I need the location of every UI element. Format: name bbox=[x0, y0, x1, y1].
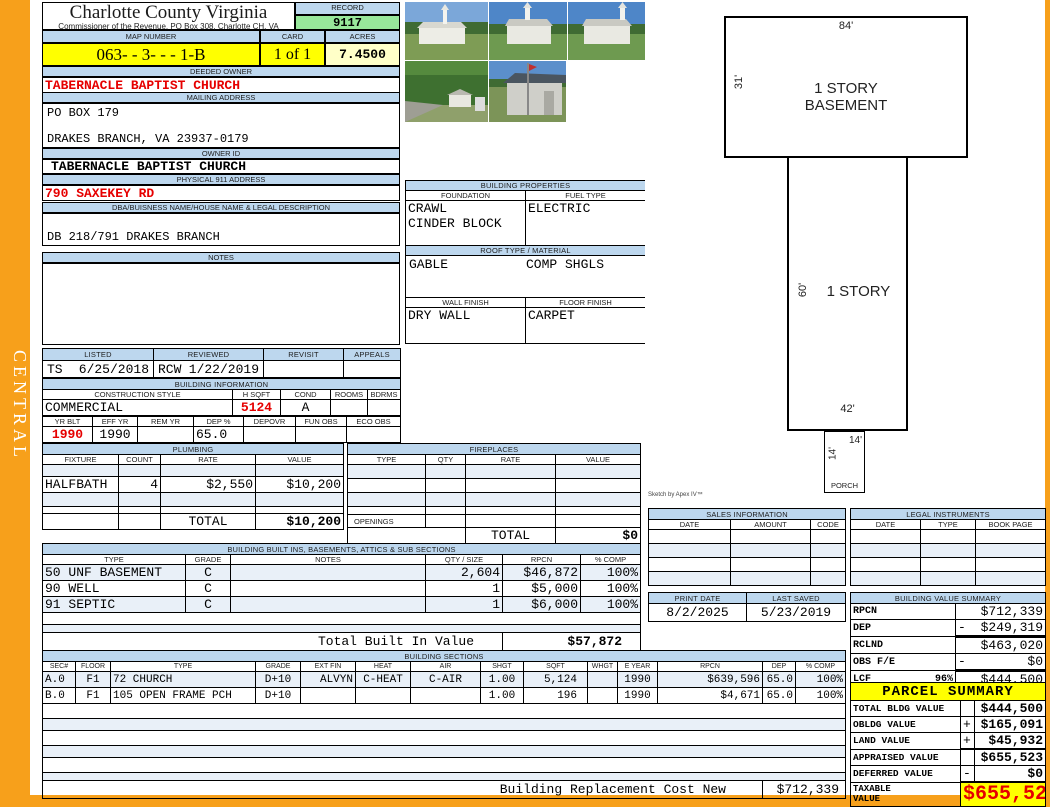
built-in-row: 91 SEPTIC C 1 $6,000 100% bbox=[43, 597, 641, 613]
appeals-value bbox=[344, 361, 401, 378]
sketch-credit: Sketch by Apex IV™ bbox=[648, 492, 703, 498]
dep-override bbox=[244, 427, 296, 443]
map-number-label: MAP NUMBER bbox=[42, 30, 260, 43]
dba-label: DBA/BUISNESS NAME/HOUSE NAME & LEGAL DES… bbox=[42, 202, 400, 213]
owner-id-value: TABERNACLE BAPTIST CHURCH bbox=[42, 159, 400, 174]
roof-value: GABLE COMP SHGLS bbox=[406, 256, 646, 298]
plumbing-count: 4 bbox=[119, 477, 161, 493]
owner-id-label: OWNER ID bbox=[42, 148, 400, 159]
parcel-row: DEFERRED VALUE - $0 bbox=[851, 766, 1046, 783]
obs-value: -$0 bbox=[956, 654, 1046, 671]
sketch-story-label: 1 STORY bbox=[811, 283, 906, 300]
dates-table: PRINT DATE LAST SAVED 8/2/2025 5/23/2019 bbox=[648, 592, 845, 622]
parcel-row: TOTAL BLDG VALUE $444,500 bbox=[851, 701, 1046, 717]
sketch-porch-label: PORCH bbox=[825, 481, 864, 490]
fireplaces-openings-label: OPENINGS bbox=[348, 515, 426, 528]
sales-information-table: SALES INFORMATION DATE AMOUNT CODE bbox=[648, 508, 845, 586]
photo-church-side-2[interactable] bbox=[568, 2, 645, 60]
building-information-table: BUILDING INFORMATION CONSTRUCTION STYLE … bbox=[42, 378, 400, 443]
parcel-row: APPRAISED VALUE $655,523 bbox=[851, 749, 1046, 766]
photo-church-front-image bbox=[405, 2, 488, 60]
built-ins-table: BUILDING BUILT INS, BASEMENTS, ATTICS & … bbox=[42, 543, 640, 651]
mailing-line2: DRAKES BRANCH, VA 23937-0179 bbox=[43, 120, 399, 146]
sketch-porch-height: 14' bbox=[828, 441, 839, 467]
plumbing-table: PLUMBING FIXTURE COUNT RATE VALUE HALFBA… bbox=[42, 443, 343, 530]
built-in-row: 90 WELL C 1 $5,000 100% bbox=[43, 581, 641, 597]
acres-value: 7.4500 bbox=[325, 43, 400, 66]
physical-911-value: 790 SAXEKEY RD bbox=[42, 185, 400, 201]
photo-metal-building-image bbox=[489, 61, 566, 122]
region-tab-central[interactable]: CENTRAL bbox=[0, 320, 30, 490]
photo-church-side-2-image bbox=[568, 2, 645, 60]
effective-year: 1990 bbox=[93, 427, 138, 443]
sketch-story-height: 60' bbox=[797, 275, 809, 305]
photo-metal-building[interactable] bbox=[489, 61, 566, 122]
appeals-label: APPEALS bbox=[344, 349, 401, 361]
photo-church-front[interactable] bbox=[405, 2, 488, 60]
review-table: LISTED REVIEWED REVISIT APPEALS TS6/25/2… bbox=[42, 348, 400, 378]
reviewed-label: REVIEWED bbox=[154, 349, 264, 361]
photo-wooded-drive[interactable] bbox=[405, 61, 488, 122]
dba-value: DB 218/791 DRAKES BRANCH bbox=[42, 213, 400, 246]
built-ins-total-value: $57,872 bbox=[503, 633, 641, 651]
built-ins-total-label: Total Built In Value bbox=[43, 633, 503, 651]
rpcn-value: $712,339 bbox=[956, 604, 1046, 620]
dep-label: DEP bbox=[851, 620, 956, 637]
fireplaces-total-value: $0 bbox=[556, 528, 641, 544]
bedrooms bbox=[368, 400, 401, 416]
legal-instruments-table: LEGAL INSTRUMENTS DATE TYPE BOOK PAGE bbox=[850, 508, 1045, 586]
building-section-row: A.0 F1 72 CHURCH D+10 ALVYN C-HEAT C-AIR… bbox=[43, 672, 846, 688]
card-label: CARD bbox=[260, 30, 325, 43]
revisit-value bbox=[264, 361, 344, 378]
building-properties-title: BUILDING PROPERTIES bbox=[406, 181, 646, 191]
year-built: 1990 bbox=[43, 427, 93, 443]
building-sketch: 84' 31' 1 STORY BASEMENT 60' 1 STORY 42'… bbox=[645, 0, 1045, 505]
plumbing-rate: $2,550 bbox=[161, 477, 256, 493]
heated-sqft: 5124 bbox=[233, 400, 281, 416]
county-title: Charlotte County Virginia bbox=[43, 3, 294, 22]
plumbing-total-label: TOTAL bbox=[161, 514, 256, 530]
building-properties-table: BUILDING PROPERTIES FOUNDATION FUEL TYPE… bbox=[405, 180, 645, 344]
parcel-row: LAND VALUE + $45,932 bbox=[851, 733, 1046, 750]
fireplaces-total-label: TOTAL bbox=[466, 528, 556, 544]
parcel-row: OBLDG VALUE + $165,091 bbox=[851, 717, 1046, 733]
taxable-value-label: TAXABLEVALUE bbox=[851, 782, 961, 807]
rclnd-value: $463,020 bbox=[956, 637, 1046, 654]
dep-value: -$249,319 bbox=[956, 620, 1046, 637]
foundation-value: CRAWLCINDER BLOCK bbox=[406, 201, 526, 246]
deeded-owner-value: TABERNACLE BAPTIST CHURCH bbox=[42, 77, 400, 93]
rpcn-label: RPCN bbox=[851, 604, 956, 620]
remodel-year bbox=[138, 427, 194, 443]
taxable-value: $655,523 bbox=[961, 782, 1046, 807]
plumbing-row: HALFBATH 4 $2,550 $10,200 bbox=[43, 477, 344, 493]
acres-label: ACRES bbox=[325, 30, 400, 43]
sketch-basement-width: 84' bbox=[726, 20, 966, 32]
county-header: Charlotte County Virginia Commissioner o… bbox=[42, 2, 295, 30]
photo-wooded-drive-image bbox=[405, 61, 488, 122]
sketch-basement-label: 1 STORY BASEMENT bbox=[726, 80, 966, 114]
listed-label: LISTED bbox=[43, 349, 154, 361]
rclnd-label: RCLND bbox=[851, 637, 956, 654]
building-value-summary-table: BUILDING VALUE SUMMARY RPCN $712,339 DEP… bbox=[850, 592, 1045, 688]
replacement-cost-value: $712,339 bbox=[763, 781, 846, 799]
obs-label: OBS F/E bbox=[851, 654, 956, 671]
construction-style: COMMERCIAL bbox=[43, 400, 233, 416]
map-number-value: 063- - 3- - - 1-B bbox=[42, 43, 260, 66]
record-label: RECORD bbox=[295, 2, 400, 15]
wall-finish-value: DRY WALL bbox=[406, 308, 526, 344]
revisit-label: REVISIT bbox=[264, 349, 344, 361]
record-number: 9117 bbox=[295, 15, 400, 30]
plumbing-fixture: HALFBATH bbox=[43, 477, 119, 493]
replacement-cost-label: Building Replacement Cost New bbox=[43, 781, 763, 799]
last-saved-date: 5/23/2019 bbox=[747, 604, 846, 622]
building-section-row: B.0 F1 105 OPEN FRAME PCH D+10 1.00 196 … bbox=[43, 688, 846, 704]
fuel-type-value: ELECTRIC bbox=[526, 201, 646, 246]
rooms bbox=[331, 400, 368, 416]
mailing-line1: PO BOX 179 bbox=[43, 104, 399, 120]
floor-finish-value: CARPET bbox=[526, 308, 646, 344]
photo-church-side-1-image bbox=[489, 2, 567, 60]
card-value: 1 of 1 bbox=[260, 43, 325, 66]
plumbing-total-value: $10,200 bbox=[256, 514, 344, 530]
sketch-story-width: 42' bbox=[789, 403, 906, 415]
notes-box bbox=[42, 263, 400, 345]
built-in-row: 50 UNF BASEMENT C 2,604 $46,872 100% bbox=[43, 565, 641, 581]
functional-obsolescence bbox=[296, 427, 347, 443]
photo-church-side-1[interactable] bbox=[489, 2, 567, 60]
print-date: 8/2/2025 bbox=[649, 604, 747, 622]
sketch-story-outline: 60' 1 STORY 42' bbox=[787, 156, 908, 431]
depreciation-pct: 65.0 bbox=[194, 427, 244, 443]
sketch-porch-outline: 14' 14' PORCH bbox=[824, 431, 865, 493]
sketch-basement-outline: 84' 31' 1 STORY BASEMENT bbox=[724, 16, 968, 158]
mailing-address-box: PO BOX 179 DRAKES BRANCH, VA 23937-0179 bbox=[42, 103, 400, 148]
reviewed-value: RCW1/22/2019 bbox=[154, 361, 264, 378]
deeded-owner-label: DEEDED OWNER bbox=[42, 66, 400, 77]
physical-911-label: PHYSICAL 911 ADDRESS bbox=[42, 174, 400, 185]
building-sections-table: BUILDING SECTIONS SEC# FLOOR TYPE GRADE … bbox=[42, 650, 845, 799]
parcel-summary-title: PARCEL SUMMARY bbox=[851, 683, 1046, 701]
mailing-address-label: MAILING ADDRESS bbox=[42, 92, 400, 103]
fireplaces-table: FIREPLACES TYPE QTY RATE VALUE OPENINGS … bbox=[347, 443, 640, 544]
notes-label: NOTES bbox=[42, 252, 400, 263]
listed-value: TS6/25/2018 bbox=[43, 361, 154, 378]
building-information-title: BUILDING INFORMATION bbox=[43, 379, 401, 390]
plumbing-value: $10,200 bbox=[256, 477, 344, 493]
condition: A bbox=[281, 400, 331, 416]
parcel-summary-table: PARCEL SUMMARY TOTAL BLDG VALUE $444,500… bbox=[850, 682, 1045, 807]
economic-obsolescence bbox=[347, 427, 401, 443]
sketch-porch-width: 14' bbox=[849, 435, 862, 446]
